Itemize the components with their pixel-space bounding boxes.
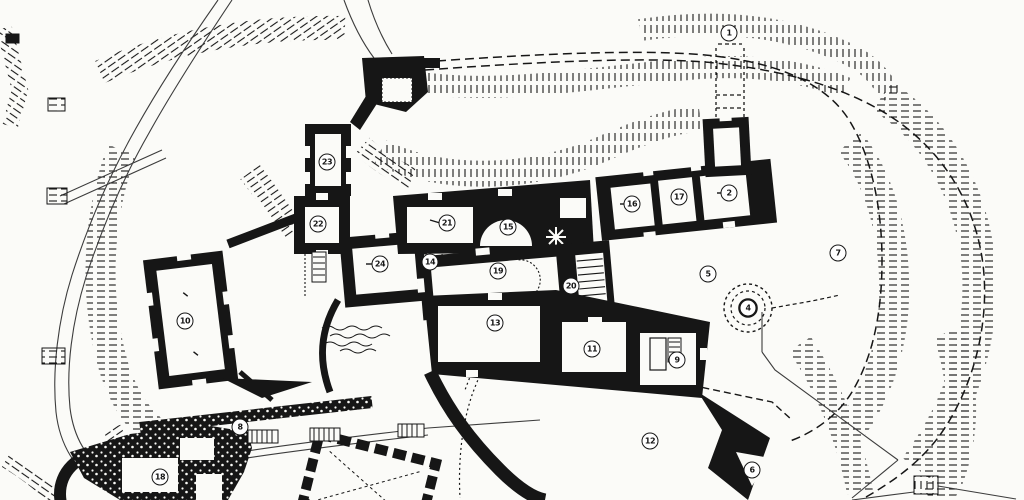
south-range-stair-icon: [668, 338, 681, 362]
plan-linework: [0, 0, 1024, 500]
wall-stair-icon: [312, 252, 326, 282]
well-icon: [724, 284, 772, 332]
castle-plan: 12322241021151914201617254713119126188: [0, 0, 1024, 500]
lower-building-group: [303, 434, 436, 500]
southwest-bastion-group: [60, 425, 252, 500]
path-stairs-icon: [248, 424, 424, 443]
water-patch-icon: [322, 326, 390, 353]
